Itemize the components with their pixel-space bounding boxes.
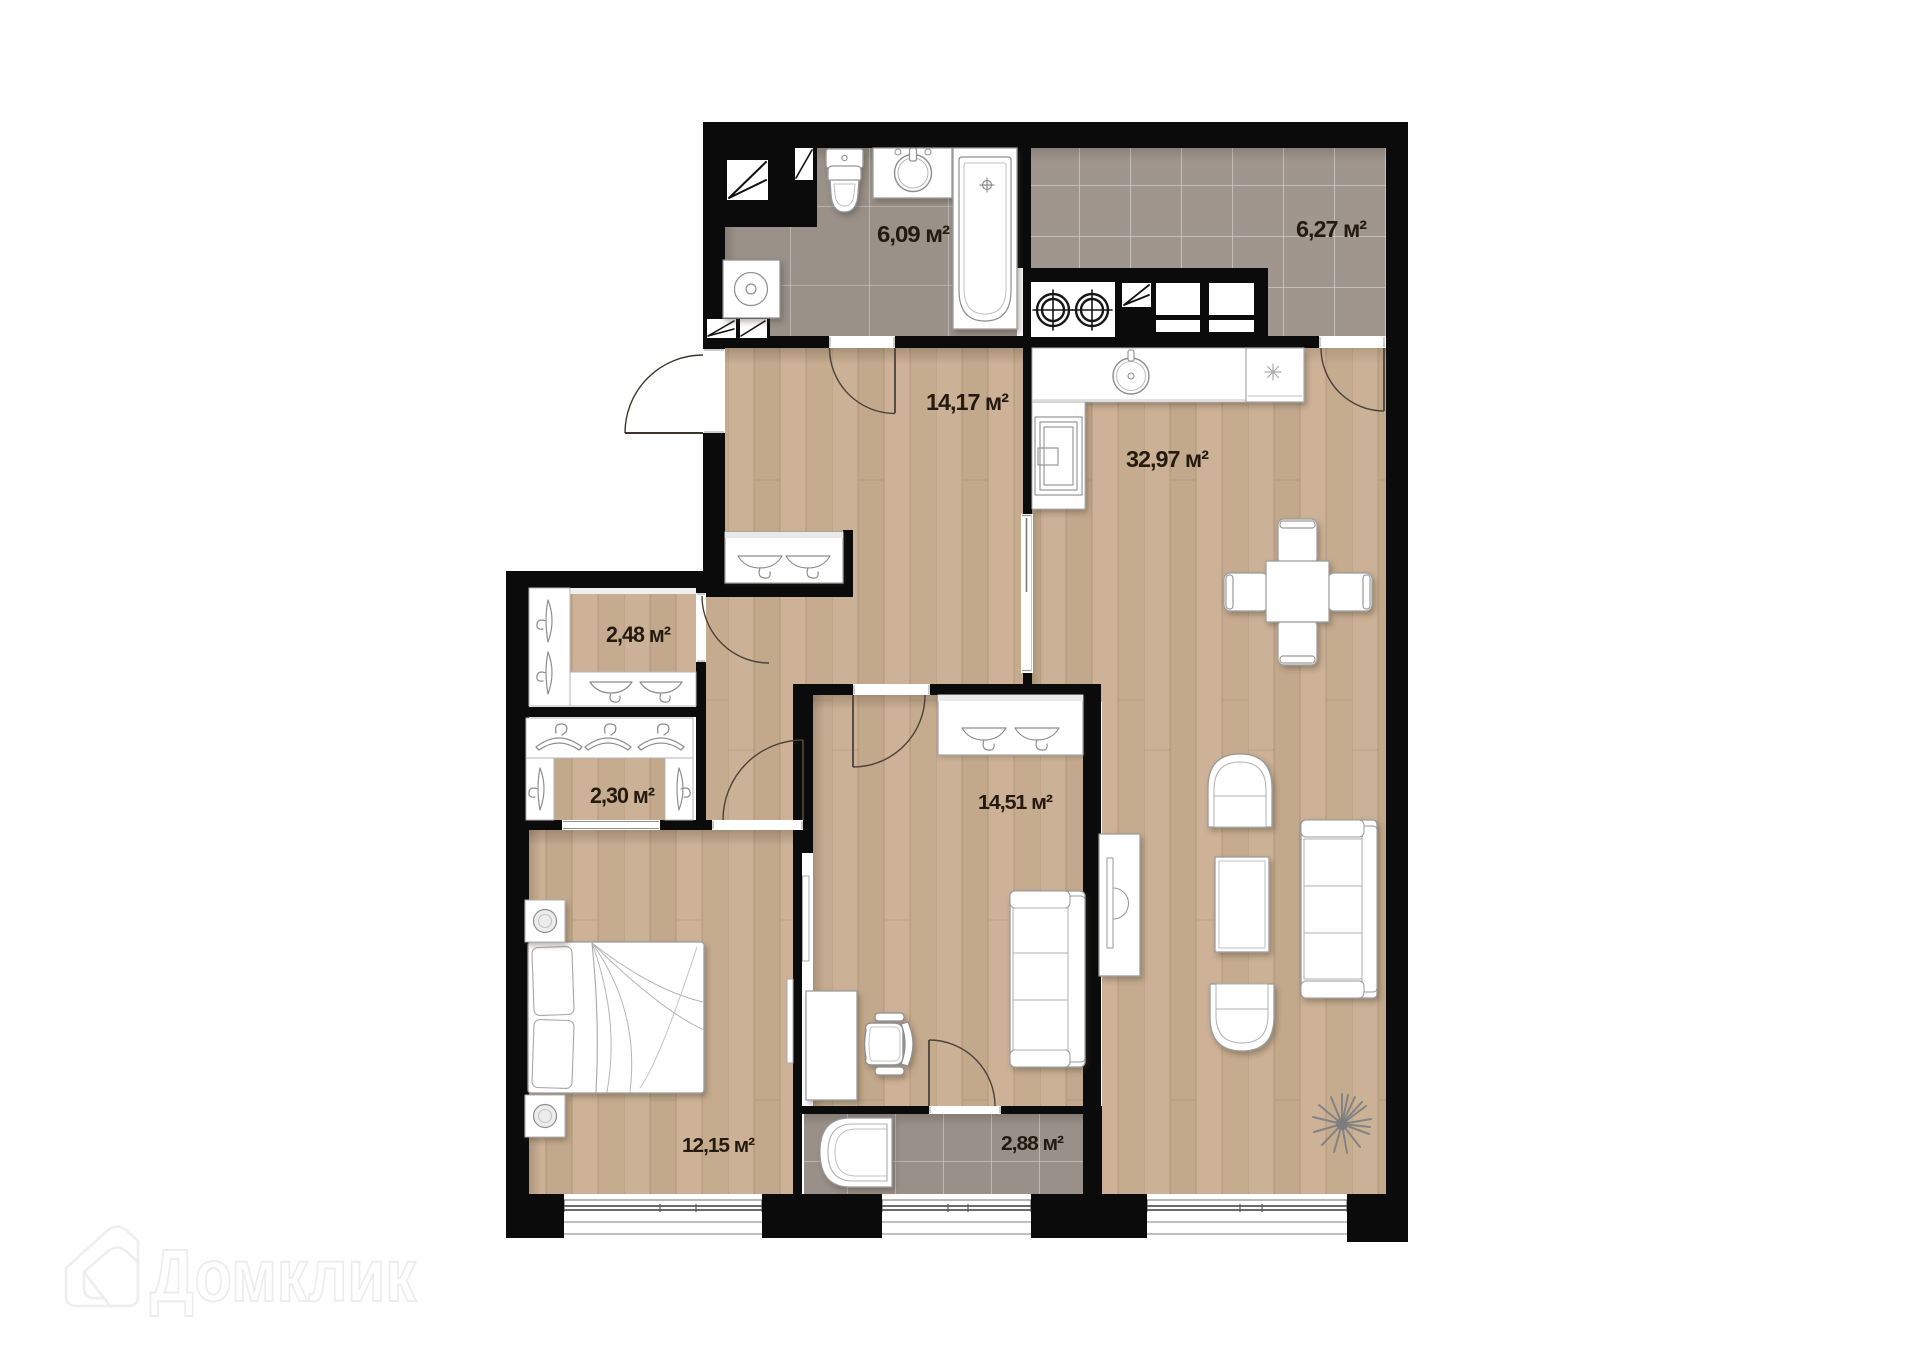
svg-text:32,97 м²: 32,97 м² xyxy=(1126,446,1209,472)
svg-text:12,15 м²: 12,15 м² xyxy=(682,1135,755,1157)
svg-text:6,09 м²: 6,09 м² xyxy=(877,221,950,247)
svg-text:2,30 м²: 2,30 м² xyxy=(590,783,655,808)
svg-text:6,27 м²: 6,27 м² xyxy=(1296,216,1367,242)
svg-text:2,88 м²: 2,88 м² xyxy=(1001,1133,1064,1155)
svg-text:2,48 м²: 2,48 м² xyxy=(606,622,671,647)
svg-text:14,17 м²: 14,17 м² xyxy=(926,389,1009,415)
svg-text:14,51 м²: 14,51 м² xyxy=(978,792,1053,814)
svg-text:Домклик: Домклик xyxy=(150,1234,417,1317)
